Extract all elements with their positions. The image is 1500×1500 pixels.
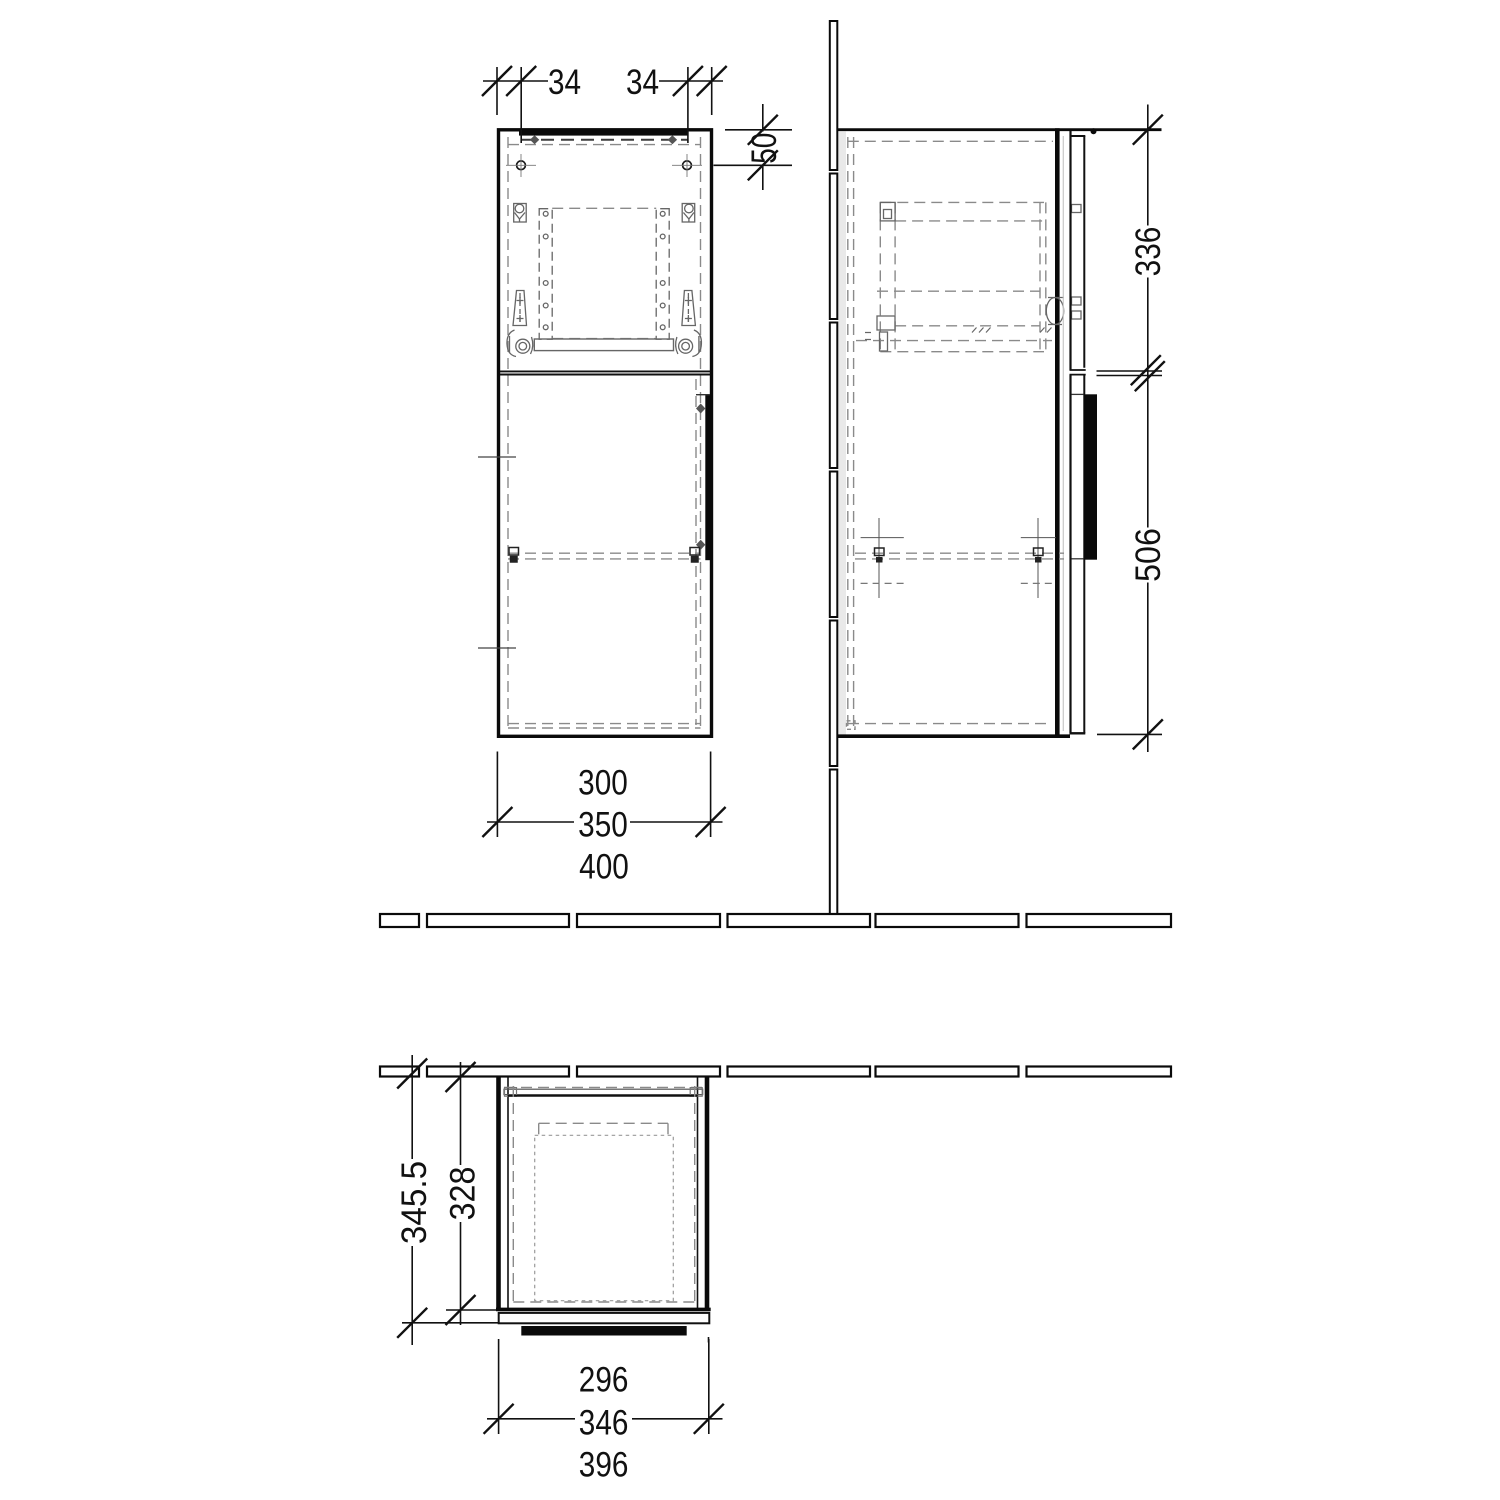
svg-text:350: 350 — [578, 805, 628, 844]
svg-text:34: 34 — [548, 63, 581, 102]
svg-text:345.5: 345.5 — [395, 1161, 434, 1244]
svg-text:506: 506 — [1130, 528, 1169, 582]
svg-text:346: 346 — [579, 1403, 629, 1442]
svg-text:328: 328 — [445, 1167, 484, 1221]
svg-text:296: 296 — [579, 1360, 629, 1399]
svg-text:300: 300 — [578, 763, 628, 802]
svg-text:400: 400 — [579, 847, 629, 886]
svg-text:336: 336 — [1129, 227, 1168, 277]
svg-text:396: 396 — [579, 1445, 629, 1484]
svg-text:34: 34 — [626, 63, 659, 102]
svg-text:50: 50 — [744, 133, 784, 164]
